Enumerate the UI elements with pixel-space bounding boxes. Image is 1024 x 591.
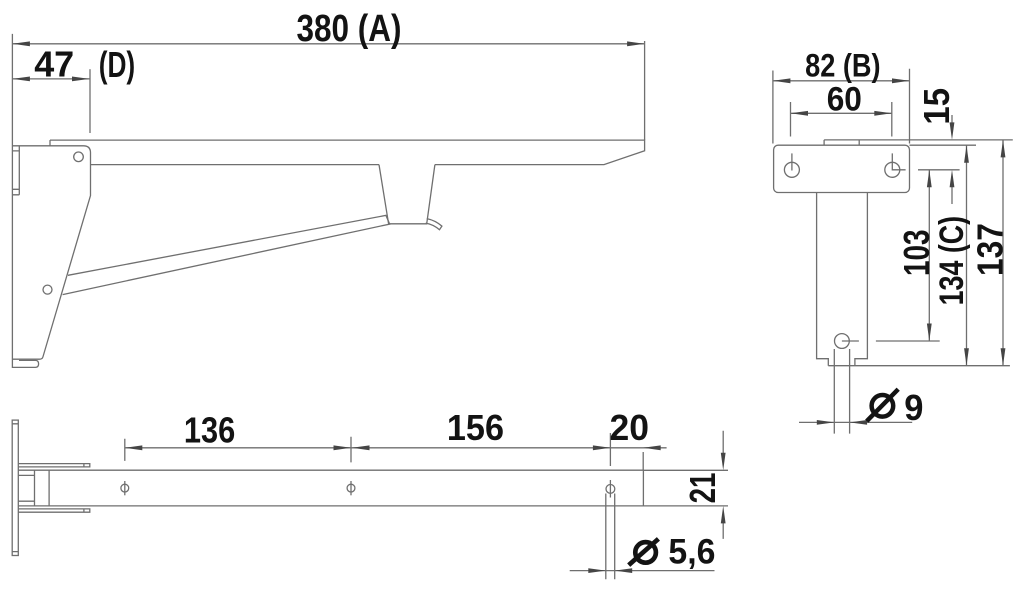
svg-text:15: 15 <box>916 88 957 125</box>
svg-text:380 (A): 380 (A) <box>297 8 402 50</box>
svg-text:(D): (D) <box>99 44 136 85</box>
svg-text:137: 137 <box>970 223 1011 276</box>
svg-text:47: 47 <box>34 44 74 85</box>
svg-text:134 (C): 134 (C) <box>933 216 971 306</box>
svg-text:9: 9 <box>904 387 923 428</box>
svg-text:82 (B): 82 (B) <box>805 48 881 84</box>
svg-text:5,6: 5,6 <box>668 533 715 572</box>
svg-text:21: 21 <box>682 473 723 504</box>
svg-text:103: 103 <box>896 229 937 276</box>
svg-text:20: 20 <box>610 407 650 448</box>
svg-text:156: 156 <box>447 407 504 448</box>
svg-text:136: 136 <box>184 410 235 451</box>
svg-text:60: 60 <box>827 81 862 119</box>
